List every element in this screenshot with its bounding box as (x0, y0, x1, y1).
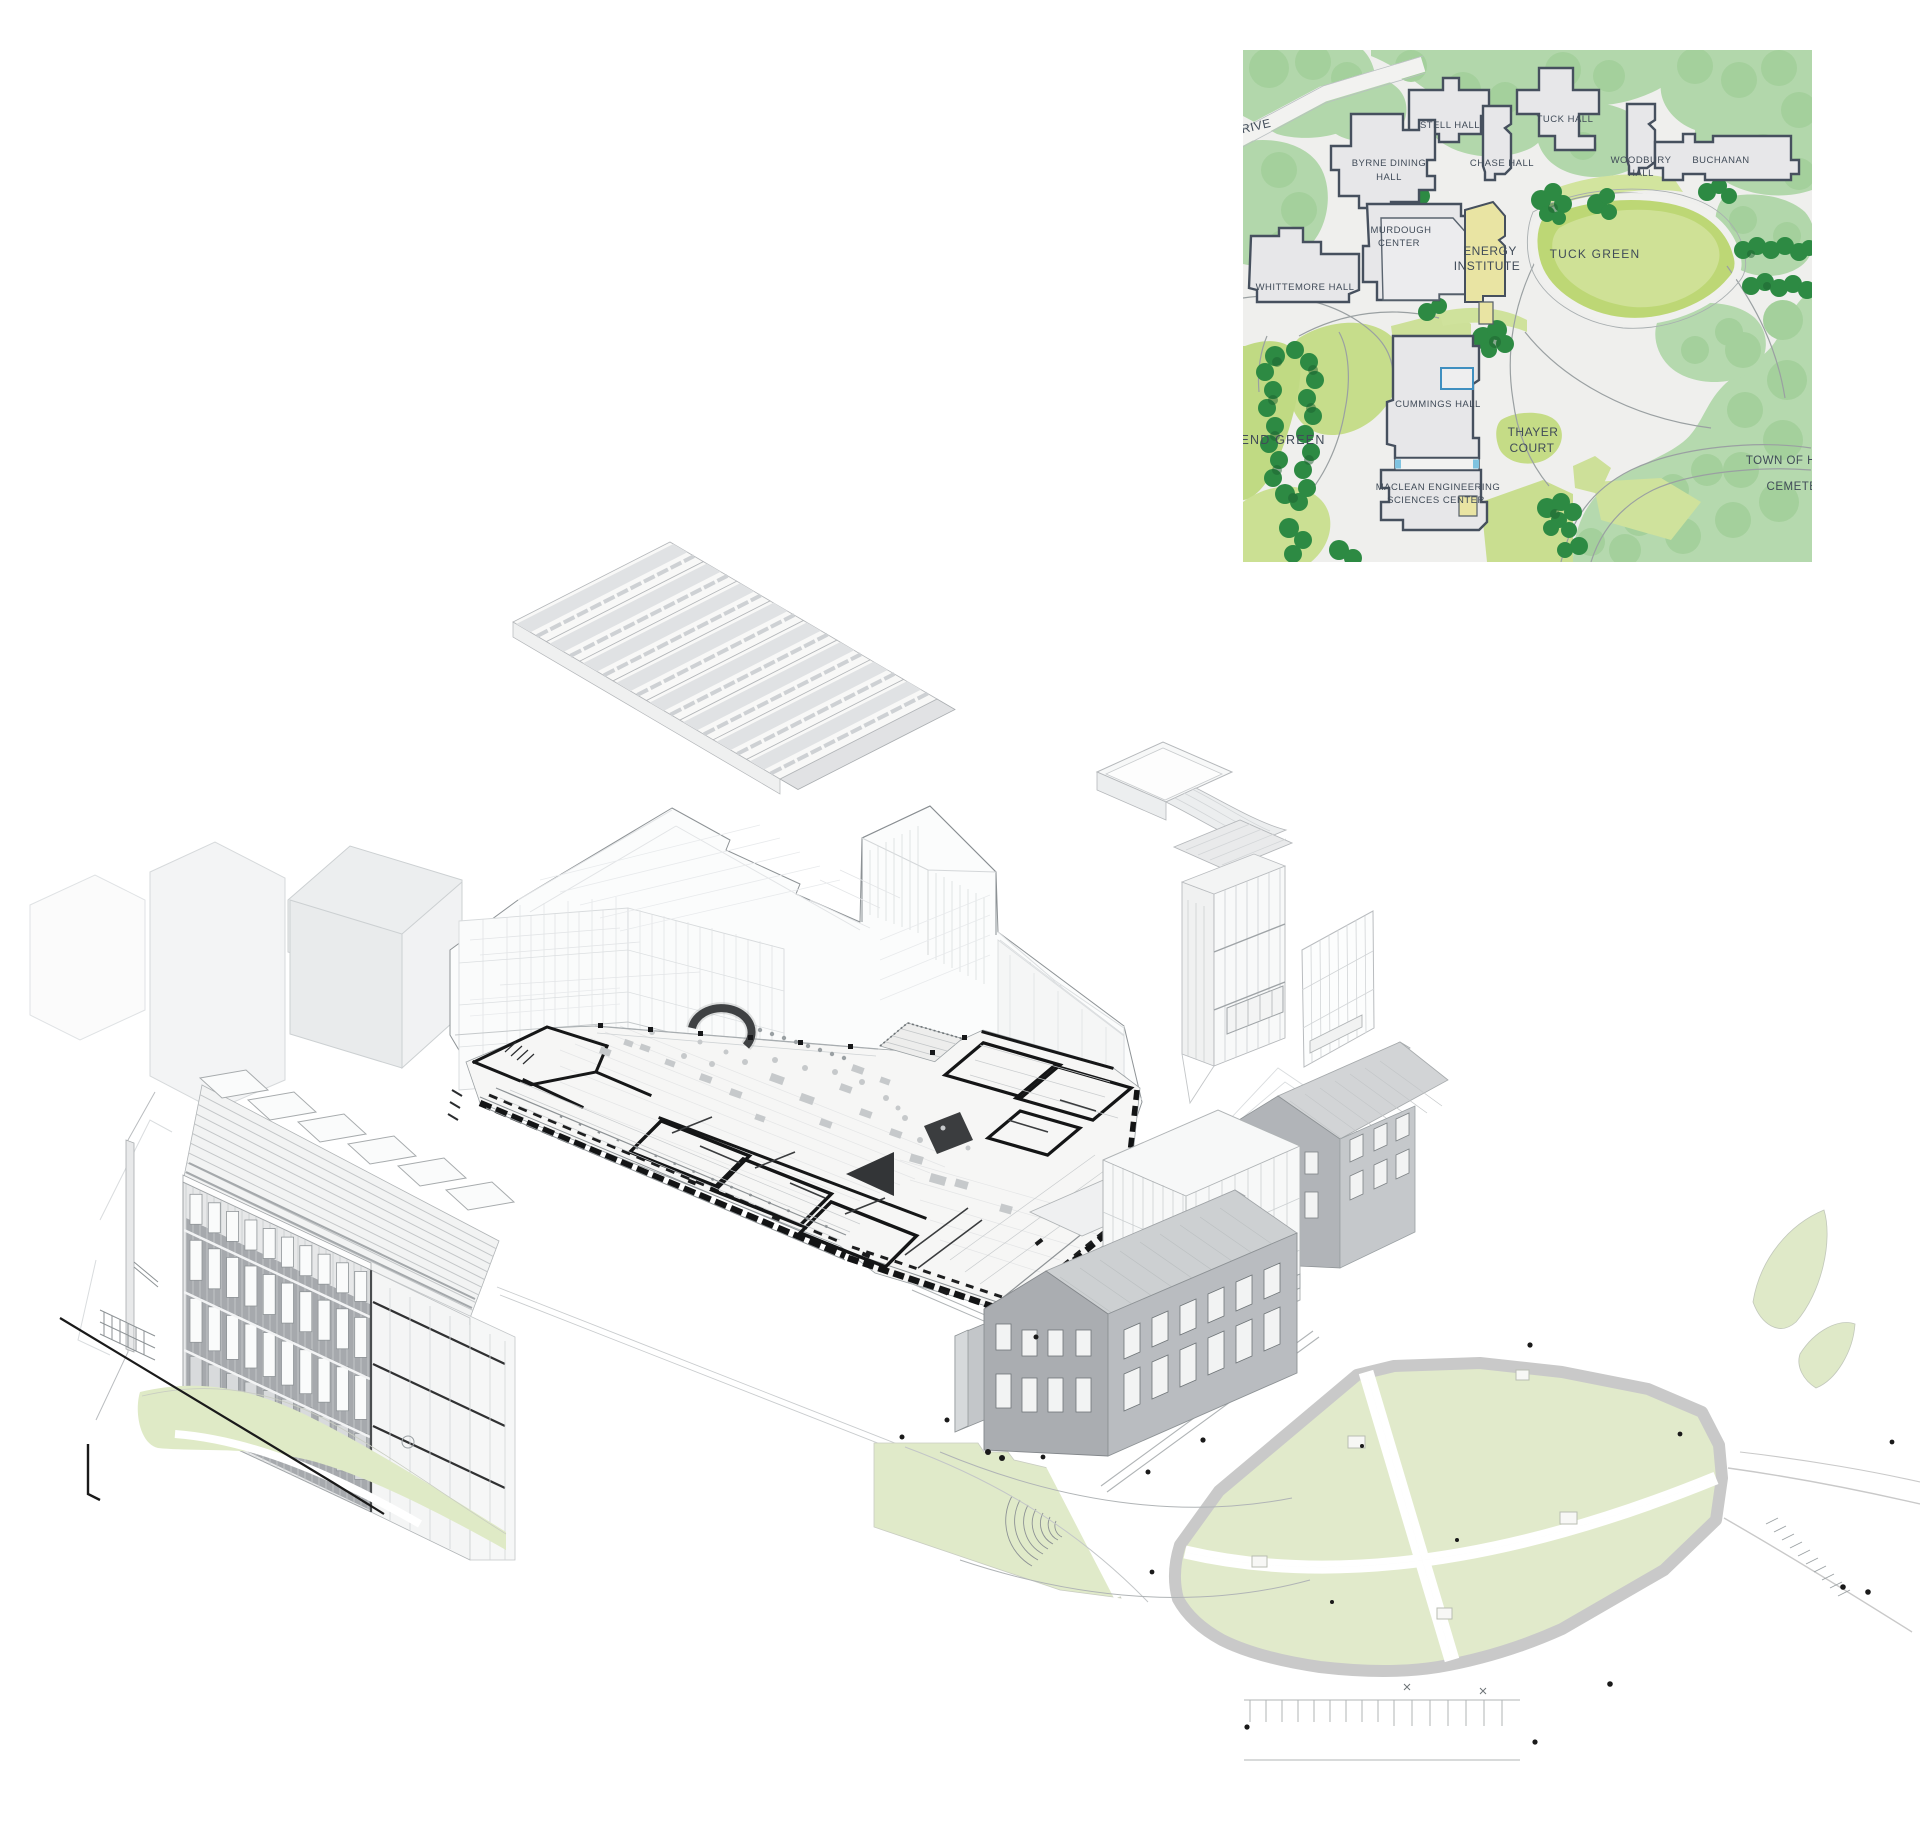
svg-text:STELL HALL: STELL HALL (1420, 120, 1480, 131)
svg-text:CHASE HALL: CHASE HALL (1470, 158, 1534, 169)
svg-text:THAYER: THAYER (1508, 425, 1559, 439)
svg-text:HALL: HALL (1628, 168, 1654, 179)
svg-text:CEMETE: CEMETE (1767, 481, 1818, 493)
svg-text:HALL: HALL (1376, 172, 1402, 183)
svg-text:COURT: COURT (1510, 441, 1555, 455)
svg-text:WHITTEMORE HALL: WHITTEMORE HALL (1256, 282, 1355, 293)
svg-text:END GREEN: END GREEN (1240, 433, 1325, 447)
svg-text:TUCK HALL: TUCK HALL (1537, 114, 1594, 125)
svg-text:SCIENCES CENTER: SCIENCES CENTER (1387, 495, 1485, 506)
svg-text:ENERGY: ENERGY (1463, 244, 1517, 258)
svg-text:BUCHANAN: BUCHANAN (1692, 155, 1749, 166)
svg-text:CENTER: CENTER (1378, 238, 1420, 249)
svg-text:CUMMINGS HALL: CUMMINGS HALL (1395, 399, 1481, 410)
svg-text:TUCK GREEN: TUCK GREEN (1550, 247, 1641, 261)
svg-text:INSTITUTE: INSTITUTE (1454, 259, 1521, 273)
svg-text:WOODBURY: WOODBURY (1611, 155, 1672, 166)
svg-text:BYRNE DINING: BYRNE DINING (1352, 158, 1427, 169)
svg-text:MACLEAN ENGINEERING: MACLEAN ENGINEERING (1376, 482, 1501, 493)
svg-text:MURDOUGH: MURDOUGH (1371, 225, 1432, 236)
